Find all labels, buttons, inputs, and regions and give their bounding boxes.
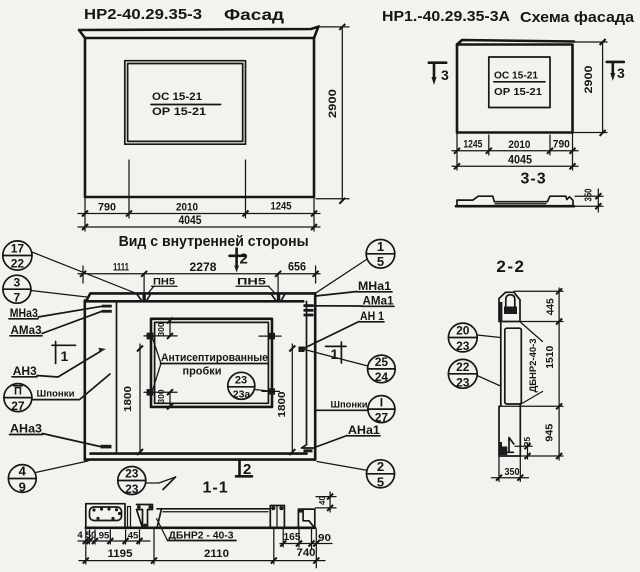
svg-text:23: 23 — [235, 375, 247, 387]
svg-text:1-1: 1-1 — [203, 480, 229, 497]
svg-text:3-3: 3-3 — [521, 171, 547, 188]
svg-text:1: 1 — [61, 348, 69, 364]
svg-text:АНа1: АНа1 — [348, 423, 380, 437]
svg-text:4: 4 — [77, 530, 83, 541]
svg-text:МНа1: МНа1 — [358, 279, 391, 293]
svg-text:350: 350 — [584, 188, 595, 201]
svg-text:2010: 2010 — [176, 202, 198, 214]
svg-text:1111: 1111 — [113, 262, 129, 274]
svg-text:656: 656 — [288, 262, 306, 274]
svg-text:2900: 2900 — [327, 89, 339, 118]
svg-text:НР1.-40.29.35-3А: НР1.-40.29.35-3А — [382, 8, 510, 25]
svg-text:АНа3: АНа3 — [10, 422, 42, 436]
svg-text:1800: 1800 — [122, 386, 134, 412]
svg-text:445: 445 — [545, 298, 557, 315]
svg-text:22: 22 — [11, 257, 25, 271]
svg-text:ОР 15-21: ОР 15-21 — [494, 87, 542, 98]
svg-text:5: 5 — [377, 254, 384, 269]
svg-text:9: 9 — [19, 480, 26, 495]
svg-text:Схема фасада: Схема фасада — [520, 9, 635, 26]
svg-text:2: 2 — [377, 459, 384, 474]
svg-text:790: 790 — [98, 202, 116, 214]
svg-text:350: 350 — [505, 467, 520, 478]
svg-text:740: 740 — [297, 547, 316, 559]
svg-text:165: 165 — [284, 532, 301, 543]
svg-text:945: 945 — [544, 424, 556, 442]
svg-text:НР2-40.29.35-3: НР2-40.29.35-3 — [84, 6, 202, 23]
svg-text:1195: 1195 — [108, 548, 133, 560]
svg-text:1245: 1245 — [463, 139, 482, 151]
svg-text:300: 300 — [156, 389, 166, 403]
svg-text:27: 27 — [11, 399, 25, 413]
svg-text:Вид с внутренней стороны: Вид с внутренней стороны — [119, 233, 309, 250]
svg-text:2278: 2278 — [190, 262, 218, 274]
svg-text:1800: 1800 — [276, 391, 288, 417]
svg-text:1510: 1510 — [544, 346, 556, 369]
svg-text:ОС 15-21: ОС 15-21 — [494, 71, 538, 82]
svg-text:40: 40 — [318, 496, 327, 505]
svg-text:Фасад: Фасад — [224, 7, 284, 24]
svg-text:90: 90 — [318, 532, 331, 544]
svg-text:АН3: АН3 — [13, 364, 37, 378]
svg-text:I: I — [380, 396, 383, 410]
svg-text:ДБНР2-40-3: ДБНР2-40-3 — [528, 339, 538, 393]
svg-text:4045: 4045 — [508, 153, 532, 167]
svg-text:3: 3 — [14, 276, 21, 290]
svg-text:17: 17 — [11, 242, 25, 256]
svg-text:23: 23 — [456, 375, 470, 389]
svg-text:95: 95 — [99, 531, 110, 542]
svg-text:45: 45 — [128, 531, 139, 542]
svg-text:2-2: 2-2 — [496, 257, 525, 276]
svg-text:П: П — [14, 386, 22, 398]
svg-text:7: 7 — [14, 291, 21, 305]
svg-text:1245: 1245 — [271, 201, 292, 213]
svg-text:2110: 2110 — [204, 548, 229, 560]
svg-text:790: 790 — [553, 139, 570, 151]
svg-text:2010: 2010 — [508, 139, 530, 151]
svg-text:ОС 15-21: ОС 15-21 — [152, 91, 202, 103]
svg-text:300: 300 — [156, 322, 166, 336]
svg-text:3: 3 — [617, 65, 625, 81]
svg-text:25: 25 — [375, 355, 389, 369]
svg-text:Шпонки: Шпонки — [37, 389, 75, 400]
svg-text:24: 24 — [375, 370, 389, 384]
svg-text:2: 2 — [243, 461, 251, 478]
svg-text:2: 2 — [240, 251, 248, 268]
svg-text:1: 1 — [377, 239, 384, 254]
svg-text:23: 23 — [125, 467, 139, 481]
svg-text:23: 23 — [125, 482, 139, 496]
svg-text:20: 20 — [456, 324, 470, 338]
svg-text:пробки: пробки — [183, 366, 222, 378]
svg-text:4: 4 — [19, 464, 27, 479]
svg-text:ОР 15-21: ОР 15-21 — [152, 106, 206, 118]
svg-text:2900: 2900 — [583, 66, 595, 94]
svg-text:1: 1 — [331, 346, 339, 362]
svg-text:АН 1: АН 1 — [360, 309, 384, 323]
svg-text:4045: 4045 — [179, 213, 202, 227]
svg-text:АМа1: АМа1 — [363, 294, 394, 308]
svg-text:АМа3: АМа3 — [11, 323, 42, 337]
svg-text:МНа3: МНа3 — [10, 306, 38, 320]
svg-text:3: 3 — [441, 67, 449, 83]
svg-text:5: 5 — [377, 475, 384, 490]
svg-text:23а: 23а — [233, 389, 251, 401]
svg-text:Антисептированные: Антисептированные — [161, 352, 268, 364]
svg-text:25: 25 — [522, 437, 532, 447]
svg-text:23: 23 — [456, 339, 470, 353]
svg-text:Шпонки: Шпонки — [331, 400, 368, 411]
svg-text:22: 22 — [456, 360, 470, 374]
